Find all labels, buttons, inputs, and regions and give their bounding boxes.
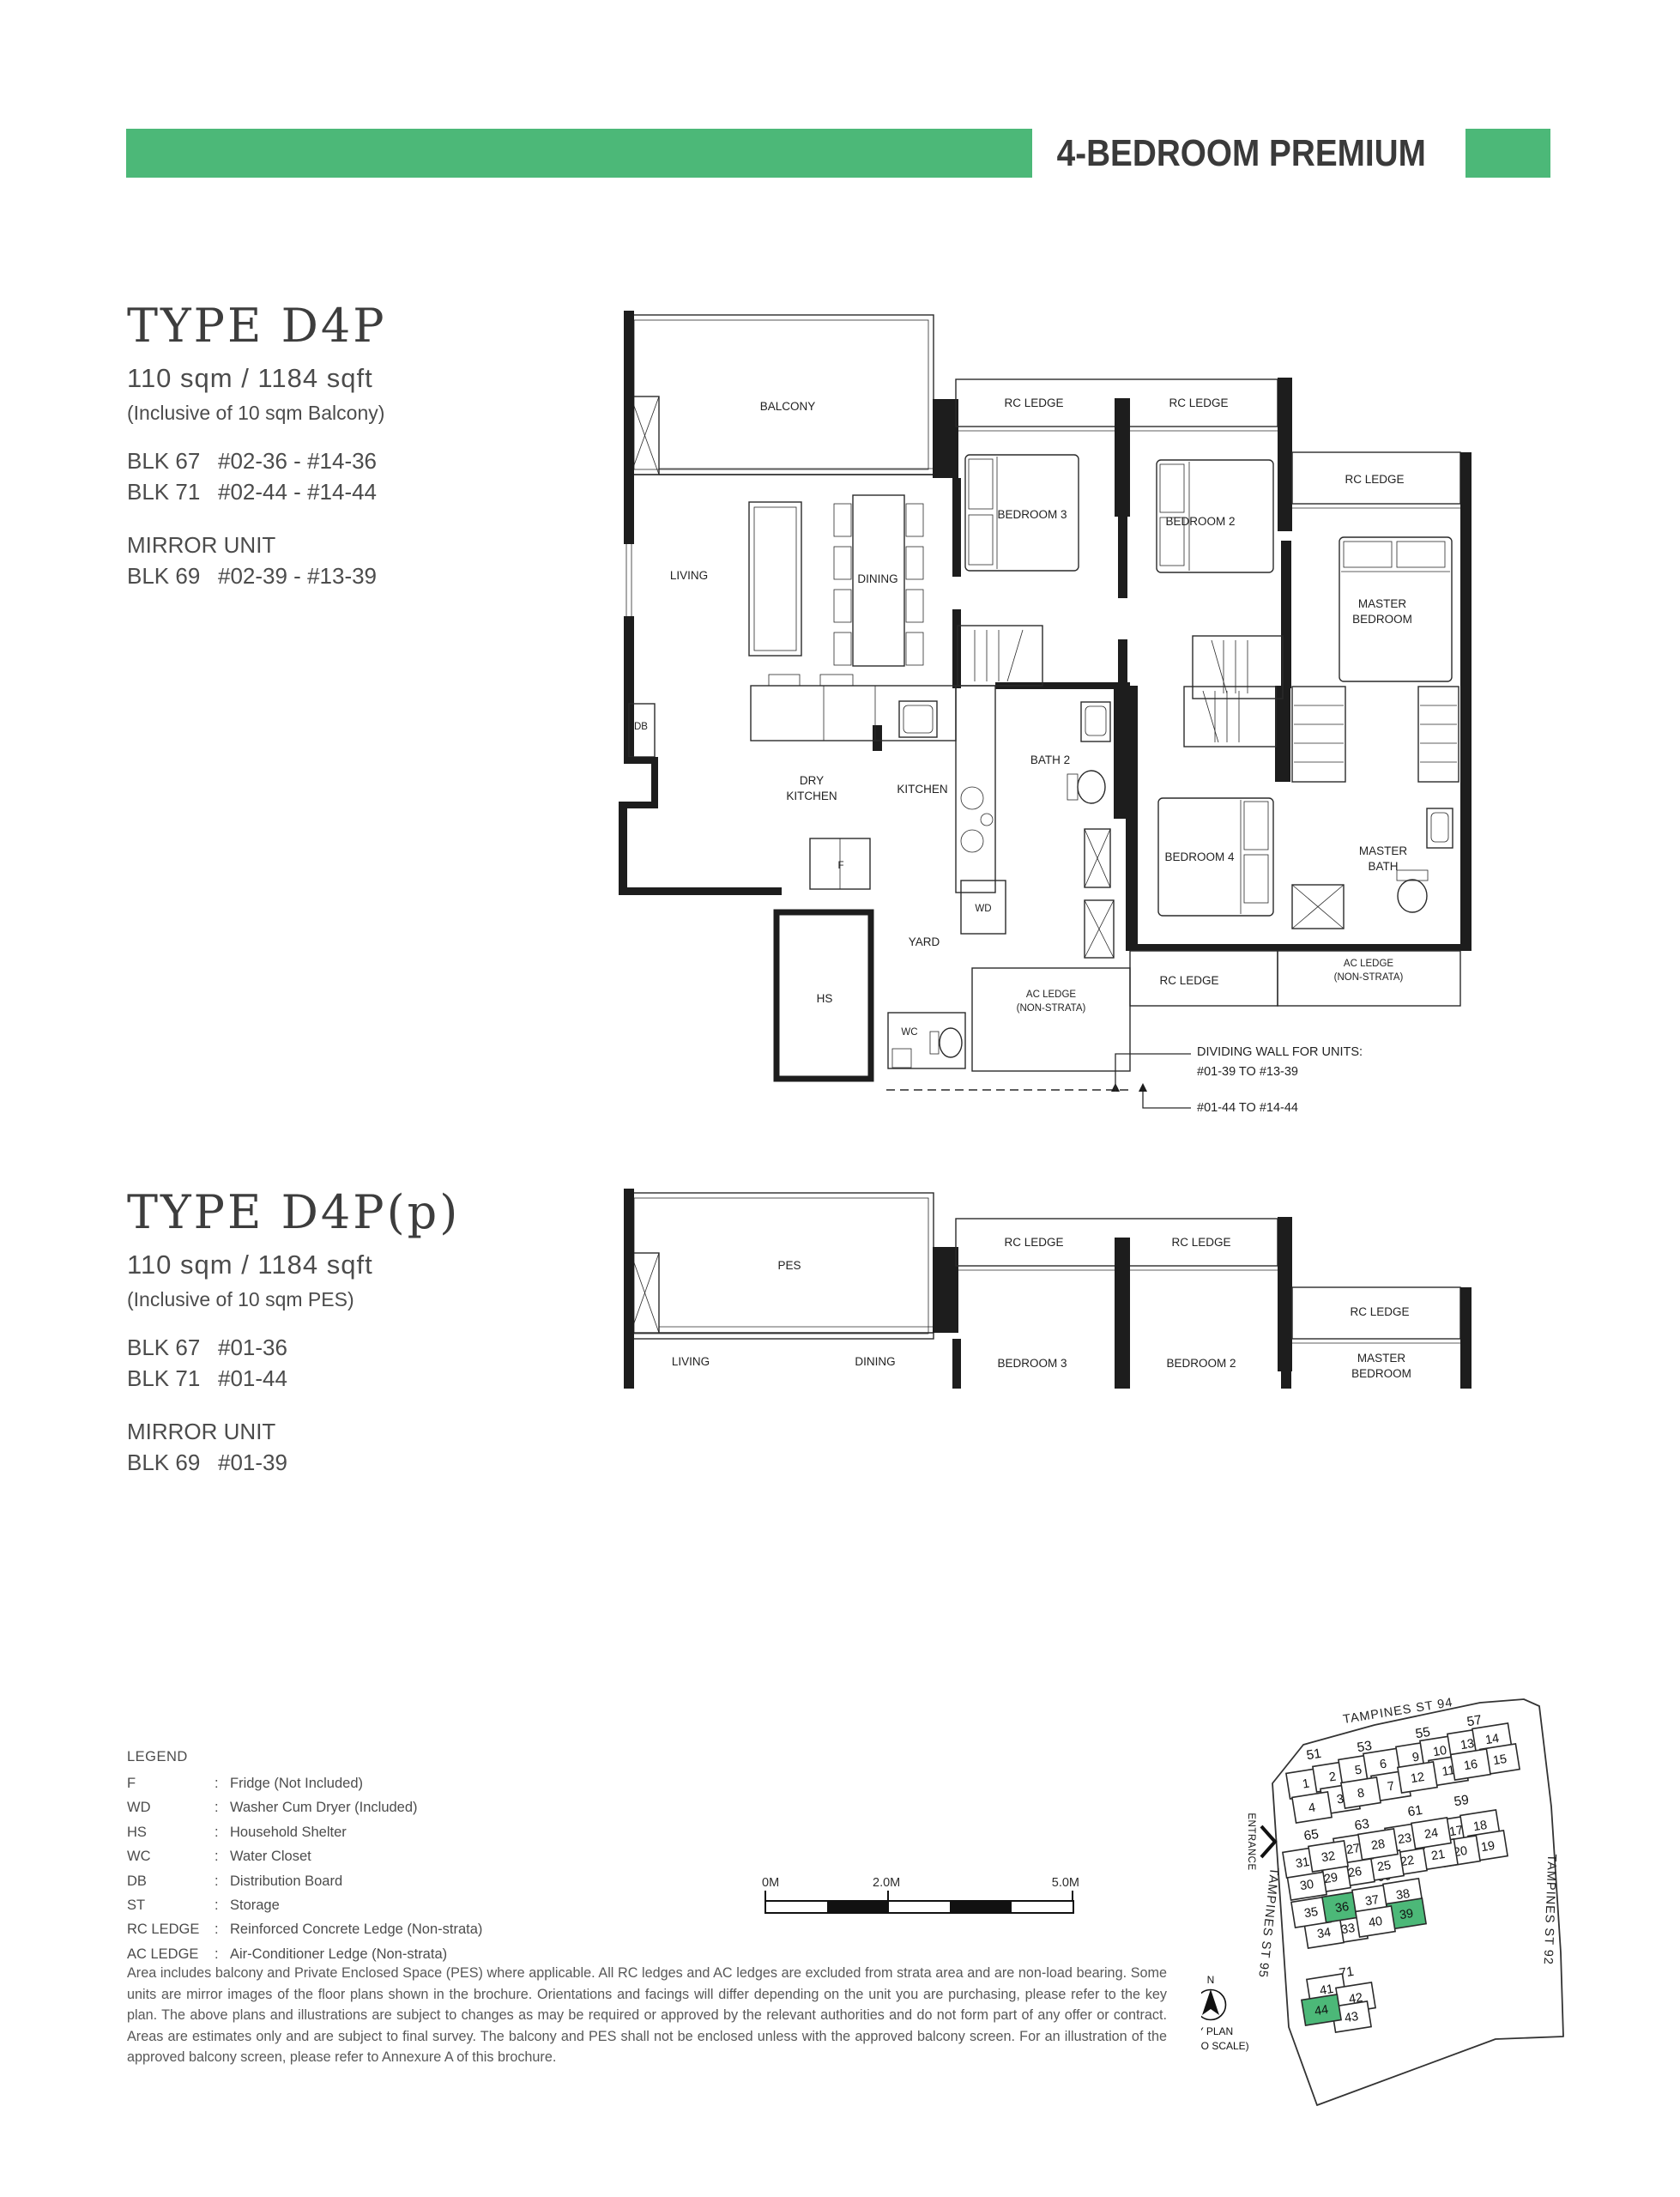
keyplan-block-number: 35 [1303,1905,1319,1921]
room-label-wd: WD [975,904,991,914]
room-label-rc-ledge: RC LEDGE [1350,1305,1409,1318]
keyplan-block-number: 44 [1314,2003,1329,2018]
block-row: BLK 71 #02-44 - #14-44 [127,476,387,507]
brochure-page: 4-BEDROOM PREMIUM TYPE D4P 110 sqm / 118… [0,0,1680,2197]
room-label-rc-ledge: RC LEDGE [1004,396,1063,409]
legend-row: F:Fridge (Not Included) [127,1771,482,1795]
mirror-unit-label: MIRROR UNIT [127,1416,460,1447]
keyplan-block-number: 23 [1397,1831,1412,1847]
block-row: BLK 69 #02-39 - #13-39 [127,560,387,591]
unit-area: 110 sqm / 1184 sqft [127,1250,460,1280]
unit-block-list: BLK 67 #01-36 BLK 71 #01-44 [127,1332,460,1394]
legend-separator: : [215,1771,230,1795]
legend-row: ST:Storage [127,1893,482,1917]
scale-bar-labels: 0M 2.0M 5.0M [764,1876,1074,1891]
keyplan-block-number: 40 [1368,1915,1383,1930]
block-id: BLK 71 [127,1363,218,1394]
unit-info-d4pp: TYPE D4P(p) 110 sqm / 1184 sqft (Inclusi… [127,1185,460,1478]
legend-separator: : [215,1869,230,1893]
room-label-ac-ledge: AC LEDGE [1026,990,1076,1000]
legend-desc: Fridge (Not Included) [230,1771,363,1795]
compass-north-label: N [1207,1974,1215,1986]
legend-desc: Distribution Board [230,1869,342,1893]
block-id: BLK 69 [127,560,218,591]
callout-text: DIVIDING WALL FOR UNITS: [1197,1045,1363,1059]
room-label-ac-ledge: (NON-STRATA) [1334,972,1404,983]
legend-key: DB [127,1869,215,1893]
legend-separator: : [215,1844,230,1868]
unit-type-title: TYPE D4P [127,299,387,353]
legend-key: WC [127,1844,215,1868]
block-units: #01-44 [218,1363,287,1394]
legend-desc: Washer Cum Dryer (Included) [230,1795,418,1819]
keyplan-block-number: 18 [1472,1819,1488,1834]
legend-row: WC:Water Closet [127,1844,482,1868]
header-accent-square [1465,129,1550,178]
room-label-bath2: BATH 2 [1030,754,1070,766]
legend-separator: : [215,1893,230,1917]
block-units: #02-44 - #14-44 [218,476,377,507]
keyplan-block-number: 15 [1492,1752,1508,1768]
room-label-living: LIVING [672,1355,710,1368]
keyplan-block: 12 [1398,1762,1437,1793]
keyplan-block-number: 36 [1334,1900,1350,1916]
keyplan-block-number: 31 [1295,1855,1310,1871]
room-label-pes: PES [777,1259,801,1272]
room-label-dry-kitchen: KITCHEN [786,790,837,802]
keyplan-block: 8 [1341,1777,1381,1808]
room-label-master-bedroom: BEDROOM [1352,613,1412,626]
keyplan-block-number: 24 [1423,1826,1439,1842]
unit-inclusive-note: (Inclusive of 10 sqm Balcony) [127,402,387,425]
block-row: BLK 67 #01-36 [127,1332,460,1363]
keyplan-block-number: 32 [1320,1849,1336,1865]
scale-tick [764,1891,766,1900]
plan-b-room-labels: PES RC LEDGE RC LEDGE RC LEDGE LIVING DI… [672,1236,1411,1380]
compass-needle-icon [1202,1989,1219,2015]
room-label-bedroom3: BEDROOM 3 [997,508,1067,521]
room-label-yard: YARD [909,935,940,948]
legend-separator: : [215,1820,230,1844]
legend-row: HS:Household Shelter [127,1820,482,1844]
keyplan-block-number: 39 [1399,1907,1414,1922]
room-label-master-bath: BATH [1368,860,1398,873]
scale-label-2m: 2.0M [873,1876,900,1890]
room-label-master-bedroom: MASTER [1357,1352,1406,1365]
keyplan-block-number: 16 [1463,1758,1478,1773]
block-units: #01-39 [218,1447,287,1478]
block-id: BLK 67 [127,445,218,476]
keyplan-block: 40 [1356,1906,1395,1937]
scale-segment [827,1902,888,1912]
room-label-master-bedroom: MASTER [1358,597,1407,610]
keyplan-block-number: 43 [1344,2010,1359,2025]
block-id: BLK 71 [127,476,218,507]
keyplan-caption-line1: KEY PLAN [1201,2025,1233,2037]
keyplan-map: TAMPINES ST 94 TAMPINES ST 92 TAMPINES S… [1201,1673,1680,2197]
legend-separator: : [215,1795,230,1819]
page-title: 4-BEDROOM PREMIUM [1057,129,1426,178]
scale-segment [1012,1902,1073,1912]
cluster-label: 65 [1302,1827,1320,1843]
room-label-kitchen: KITCHEN [897,783,947,796]
keyplan-block-number: 19 [1480,1839,1496,1855]
scale-tick [887,1891,889,1900]
street-label-left: TAMPINES ST 95 [1255,1867,1280,1978]
room-label-rc-ledge: RC LEDGE [1171,1236,1230,1249]
block-row: BLK 69 #01-39 [127,1447,460,1478]
room-label-ac-ledge: AC LEDGE [1344,959,1393,969]
scale-tick [1072,1891,1073,1900]
keyplan-block: 28 [1358,1829,1398,1860]
cluster-label: 59 [1453,1793,1470,1809]
legend-desc: Household Shelter [230,1820,347,1844]
room-label-wc: WC [901,1027,917,1038]
cluster-label: 51 [1305,1746,1322,1763]
scale-bar: 0M 2.0M 5.0M [764,1876,1074,1914]
unit-inclusive-note: (Inclusive of 10 sqm PES) [127,1288,460,1311]
legend-desc: Storage [230,1893,280,1917]
legend-key: F [127,1771,215,1795]
keyplan-caption: KEY PLAN (NOT TO SCALE) [1201,2025,1249,2052]
keyplan-block: 4 [1292,1792,1332,1823]
legend-key: RC LEDGE [127,1917,215,1941]
block-units: #02-39 - #13-39 [218,560,377,591]
callout-text: #01-39 TO #13-39 [1197,1065,1298,1079]
keyplan-block: 32 [1308,1841,1348,1872]
room-label-dry-kitchen: DRY [800,774,824,787]
scale-segment [766,1902,827,1912]
keyplan-block-highlighted: 44 [1302,1994,1341,2025]
scale-segment [950,1902,1011,1912]
unit-block-list: BLK 67 #02-36 - #14-36 BLK 71 #02-44 - #… [127,445,387,507]
unit-type-title: TYPE D4P(p) [127,1185,460,1239]
keyplan-block-number: 34 [1316,1926,1332,1941]
room-label-balcony: BALCONY [760,400,816,413]
room-label-bedroom3: BEDROOM 3 [997,1357,1067,1370]
scale-label-5m: 5.0M [1052,1876,1079,1890]
keyplan-block-number: 28 [1370,1837,1386,1853]
mirror-unit-label: MIRROR UNIT [127,530,387,560]
keyplan-block-number: 12 [1410,1770,1425,1786]
room-label-db: DB [634,722,648,732]
scale-bar-strip [764,1900,1074,1914]
legend-row: DB:Distribution Board [127,1869,482,1893]
floorplan-d4pp: PES RC LEDGE RC LEDGE RC LEDGE LIVING DI… [601,1187,1519,1389]
legend-key: WD [127,1795,215,1819]
keyplan-block-number: 10 [1432,1744,1447,1759]
legend: LEGEND F:Fridge (Not Included) WD:Washer… [127,1749,482,1966]
legend-title: LEGEND [127,1749,482,1765]
cluster-label: 61 [1406,1803,1423,1819]
scale-segment [889,1902,950,1912]
room-label-bedroom4: BEDROOM 4 [1164,850,1235,863]
room-label-ac-ledge: (NON-STRATA) [1017,1003,1086,1014]
keyplan-block-number: 21 [1430,1848,1446,1863]
legend-desc: Water Closet [230,1844,311,1868]
legend-key: ST [127,1893,215,1917]
room-label-dining: DINING [855,1355,895,1368]
room-label-bedroom2: BEDROOM 2 [1165,515,1235,528]
keyplan-block-number: 14 [1484,1732,1500,1747]
block-units: #01-36 [218,1332,287,1363]
floorplan-d4p: BALCONY RC LEDGE RC LEDGE RC LEDGE LIVIN… [601,300,1519,1124]
room-label-fridge: F [837,861,843,871]
room-label-master-bedroom: BEDROOM [1351,1367,1411,1380]
keyplan-block-number: 37 [1364,1893,1380,1909]
keyplan-block-number: 27 [1345,1842,1361,1857]
block-row: BLK 67 #02-36 - #14-36 [127,445,387,476]
room-label-dining: DINING [857,572,897,585]
scale-label-0m: 0M [762,1876,779,1890]
disclaimer-text: Area includes balcony and Private Enclos… [127,1963,1167,2068]
legend-separator: : [215,1917,230,1941]
block-id: BLK 67 [127,1332,218,1363]
keyplan-block-number: 13 [1459,1737,1475,1752]
keyplan-block: 16 [1451,1749,1490,1780]
callout-text: #01-44 TO #14-44 [1197,1101,1298,1115]
entrance-marker: ENTRANCE [1246,1813,1275,1870]
room-label-hs: HS [817,992,833,1005]
plan-a-dividing-wall-callout: DIVIDING WALL FOR UNITS: #01-39 TO #13-3… [886,1045,1363,1115]
room-label-living: LIVING [670,569,708,582]
keyplan-block: 24 [1411,1818,1451,1849]
legend-row: RC LEDGE:Reinforced Concrete Ledge (Non-… [127,1917,482,1941]
keyplan-block-number: 30 [1299,1878,1314,1893]
block-id: BLK 69 [127,1447,218,1478]
block-units: #02-36 - #14-36 [218,445,377,476]
entrance-label: ENTRANCE [1246,1813,1256,1870]
keyplan-block-number: 25 [1376,1859,1392,1874]
keyplan-caption-line2: (NOT TO SCALE) [1201,2040,1249,2052]
room-label-rc-ledge: RC LEDGE [1345,473,1404,486]
room-label-master-bath: MASTER [1359,844,1408,857]
room-label-bedroom2: BEDROOM 2 [1166,1357,1236,1370]
legend-row: WD:Washer Cum Dryer (Included) [127,1795,482,1819]
room-label-rc-ledge: RC LEDGE [1004,1236,1063,1249]
legend-desc: Reinforced Concrete Ledge (Non-strata) [230,1917,482,1941]
unit-area: 110 sqm / 1184 sqft [127,363,387,394]
room-label-rc-ledge: RC LEDGE [1169,396,1228,409]
unit-info-d4p: TYPE D4P 110 sqm / 1184 sqft (Inclusive … [127,299,387,591]
cluster-label: 63 [1353,1817,1370,1833]
room-label-rc-ledge: RC LEDGE [1159,974,1218,987]
header-accent-bar [126,129,1032,178]
entrance-arrow-icon [1261,1826,1275,1857]
block-row: BLK 71 #01-44 [127,1363,460,1394]
compass: N [1201,1974,1226,2020]
legend-key: HS [127,1820,215,1844]
